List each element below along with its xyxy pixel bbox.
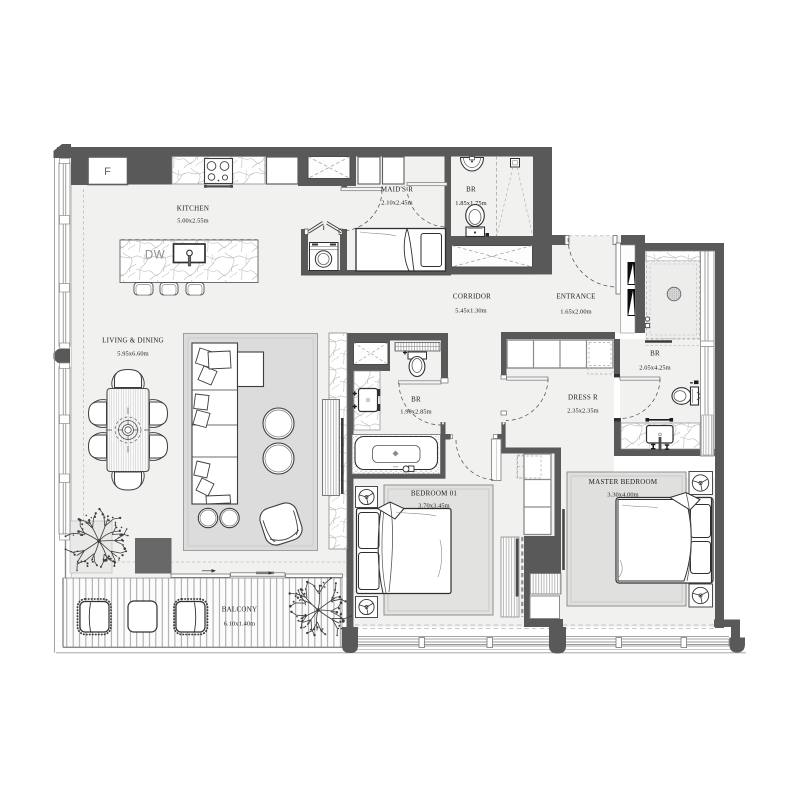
svg-text:1.85x1.75m: 1.85x1.75m <box>455 200 487 207</box>
svg-text:BR: BR <box>411 396 421 404</box>
svg-text:1.65x2.00m: 1.65x2.00m <box>560 309 592 316</box>
svg-text:2.10x2.45m: 2.10x2.45m <box>381 200 413 207</box>
svg-text:MASTER BEDROOM: MASTER BEDROOM <box>589 478 658 486</box>
svg-text:BALCONY: BALCONY <box>222 606 258 614</box>
svg-text:CORRIDOR: CORRIDOR <box>453 293 491 301</box>
svg-text:3.30x4.00m: 3.30x4.00m <box>607 492 639 499</box>
svg-text:LIVING & DINING: LIVING & DINING <box>102 337 164 345</box>
svg-text:F: F <box>104 166 111 178</box>
svg-text:BR: BR <box>466 186 476 194</box>
svg-text:BEDROOM 01: BEDROOM 01 <box>411 490 458 498</box>
svg-text:5.95x6.60m: 5.95x6.60m <box>117 351 149 358</box>
svg-text:6.10x1.40m: 6.10x1.40m <box>224 621 256 628</box>
svg-text:2.35x2.35m: 2.35x2.35m <box>567 408 599 415</box>
svg-text:DW: DW <box>145 250 165 262</box>
svg-text:ENTRANCE: ENTRANCE <box>556 293 595 301</box>
svg-text:MAID'S R: MAID'S R <box>381 186 413 194</box>
svg-text:5.45x1.30m: 5.45x1.30m <box>455 308 487 315</box>
svg-text:KITCHEN: KITCHEN <box>177 205 209 213</box>
svg-text:2.05x4.25m: 2.05x4.25m <box>639 365 671 372</box>
svg-text:BR: BR <box>650 350 660 358</box>
svg-text:5.00x2.55m: 5.00x2.55m <box>177 218 209 225</box>
svg-text:1.90x2.85m: 1.90x2.85m <box>400 409 432 416</box>
svg-text:DRESS R: DRESS R <box>568 394 598 402</box>
svg-text:3.70x3.45m: 3.70x3.45m <box>418 503 450 510</box>
